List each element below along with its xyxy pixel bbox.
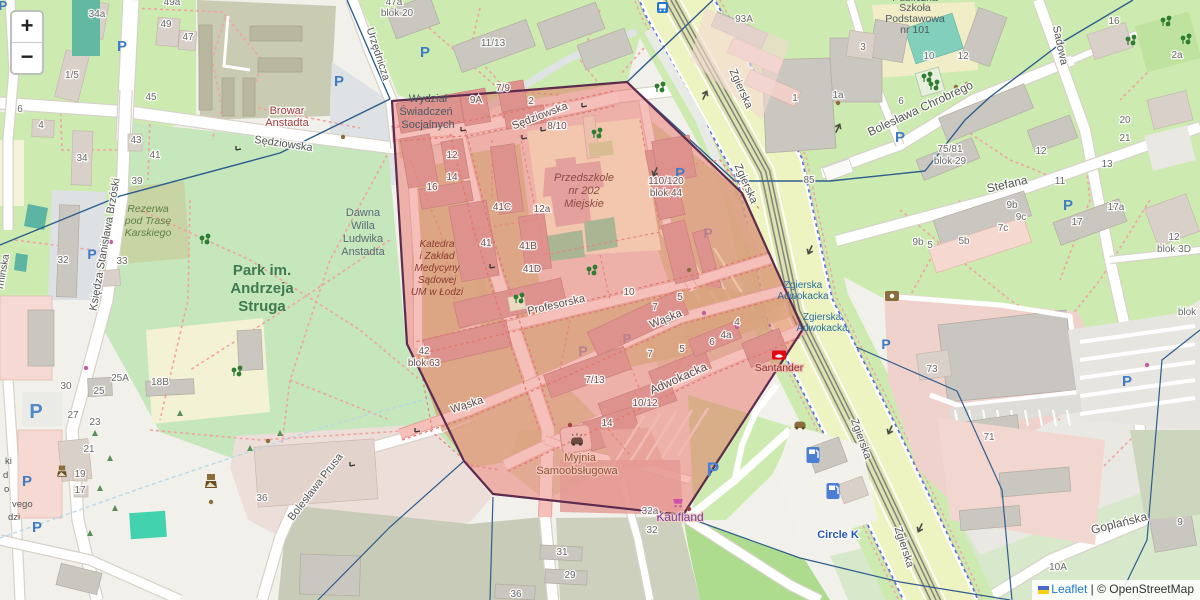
svg-text:9: 9: [1177, 517, 1183, 528]
svg-text:Medycyny: Medycyny: [414, 263, 460, 274]
svg-text:Struga: Struga: [238, 298, 286, 315]
svg-text:P: P: [22, 473, 32, 490]
svg-text:13: 13: [1101, 159, 1113, 170]
svg-text:47a: 47a: [386, 0, 403, 8]
svg-text:10/12: 10/12: [632, 398, 657, 409]
svg-text:23: 23: [89, 417, 101, 428]
svg-text:P: P: [32, 519, 42, 536]
svg-text:36: 36: [256, 493, 268, 504]
svg-text:85: 85: [803, 175, 815, 186]
svg-text:5: 5: [679, 344, 685, 355]
svg-text:20: 20: [1119, 115, 1131, 126]
svg-text:Ludwika: Ludwika: [343, 233, 384, 245]
svg-text:blok: blok: [1178, 307, 1197, 318]
svg-text:10: 10: [623, 287, 635, 298]
svg-text:7: 7: [652, 302, 658, 313]
svg-text:14: 14: [601, 418, 613, 429]
svg-text:3: 3: [860, 42, 866, 53]
svg-text:71: 71: [983, 432, 995, 443]
svg-text:Wydział: Wydział: [409, 93, 448, 105]
svg-text:36: 36: [510, 589, 522, 600]
svg-text:vego: vego: [12, 499, 33, 510]
svg-text:5: 5: [927, 240, 933, 251]
svg-text:7c: 7c: [998, 223, 1009, 234]
svg-text:32a: 32a: [642, 506, 659, 517]
svg-text:Myjnia: Myjnia: [564, 452, 597, 464]
svg-text:blok 44: blok 44: [650, 188, 683, 199]
svg-text:34a: 34a: [89, 9, 106, 20]
svg-text:Adwokacka: Adwokacka: [796, 323, 848, 334]
svg-text:Dawna: Dawna: [346, 207, 381, 219]
svg-text:21: 21: [1119, 133, 1131, 144]
svg-text:P: P: [420, 44, 430, 61]
svg-text:41C: 41C: [493, 202, 511, 213]
svg-text:10: 10: [923, 51, 935, 62]
svg-text:10A: 10A: [1049, 562, 1067, 573]
svg-text:5: 5: [677, 292, 683, 303]
svg-text:Socjalnych: Socjalnych: [401, 119, 454, 131]
svg-text:P: P: [623, 331, 632, 346]
svg-text:Samoobsługowa: Samoobsługowa: [536, 465, 618, 477]
svg-text:UM w Łodzi: UM w Łodzi: [411, 287, 464, 298]
svg-text:Anstadta: Anstadta: [341, 246, 385, 258]
svg-text:7: 7: [647, 349, 653, 360]
svg-text:Katedra: Katedra: [419, 239, 454, 250]
svg-text:25A: 25A: [111, 373, 129, 384]
svg-text:6: 6: [709, 337, 715, 348]
svg-text:nr 101: nr 101: [900, 24, 930, 36]
svg-text:1a: 1a: [832, 90, 844, 101]
svg-text:4: 4: [38, 120, 44, 131]
svg-text:d: d: [3, 470, 8, 481]
svg-text:Miejskie: Miejskie: [564, 198, 604, 210]
svg-text:P: P: [117, 38, 127, 55]
svg-text:P: P: [895, 129, 905, 146]
svg-text:i Zakład: i Zakład: [419, 251, 454, 262]
svg-text:dzi: dzi: [8, 512, 20, 523]
svg-text:Browar: Browar: [270, 105, 305, 117]
svg-text:41B: 41B: [519, 241, 537, 252]
svg-text:4a: 4a: [720, 330, 732, 341]
svg-text:P: P: [881, 336, 890, 352]
svg-text:9b: 9b: [1006, 200, 1018, 211]
svg-text:P: P: [703, 225, 712, 241]
svg-text:o: o: [4, 484, 9, 495]
svg-text:49: 49: [160, 19, 172, 30]
svg-text:21: 21: [83, 444, 95, 455]
svg-text:32: 32: [646, 525, 658, 536]
svg-text:Willa: Willa: [351, 220, 376, 232]
svg-text:9c: 9c: [1016, 212, 1027, 223]
svg-text:42: 42: [418, 346, 430, 357]
svg-text:blok 3D: blok 3D: [1157, 244, 1191, 255]
svg-text:45: 45: [145, 92, 157, 103]
svg-text:18B: 18B: [151, 377, 169, 388]
svg-text:17: 17: [1071, 217, 1083, 228]
svg-text:Zgierska: Zgierska: [784, 280, 823, 291]
svg-text:2a: 2a: [1171, 50, 1183, 61]
svg-text:P: P: [1063, 197, 1073, 214]
svg-text:6: 6: [898, 96, 904, 107]
svg-text:P: P: [1122, 373, 1132, 390]
svg-text:blok 63: blok 63: [408, 358, 441, 369]
svg-text:41: 41: [480, 238, 492, 249]
svg-text:31: 31: [556, 547, 568, 558]
svg-text:11/13: 11/13: [481, 38, 506, 49]
svg-text:39: 39: [131, 176, 143, 187]
svg-text:P: P: [29, 401, 42, 423]
svg-text:P: P: [87, 246, 96, 262]
svg-text:32: 32: [57, 255, 69, 266]
svg-text:Kaufland: Kaufland: [656, 510, 703, 524]
svg-text:Karskiego: Karskiego: [125, 227, 172, 239]
svg-text:Przedszkole: Przedszkole: [554, 172, 614, 184]
svg-text:73: 73: [926, 364, 938, 375]
svg-text:P: P: [0, 0, 8, 13]
svg-text:19: 19: [74, 469, 86, 480]
svg-text:1: 1: [792, 93, 798, 104]
svg-text:5b: 5b: [958, 236, 970, 247]
svg-text:47: 47: [182, 32, 194, 43]
svg-text:6: 6: [17, 104, 23, 115]
svg-text:blok 29: blok 29: [934, 156, 967, 167]
svg-text:Andrzeja: Andrzeja: [230, 280, 294, 297]
svg-text:blok 20: blok 20: [381, 8, 414, 19]
svg-text:25: 25: [93, 386, 105, 397]
svg-text:Circle K: Circle K: [817, 529, 859, 541]
svg-text:P: P: [578, 343, 587, 359]
svg-text:16: 16: [426, 182, 438, 193]
svg-text:Anstadta: Anstadta: [265, 117, 309, 129]
svg-text:41D: 41D: [523, 264, 541, 275]
svg-text:75/81: 75/81: [937, 144, 962, 155]
svg-text:Sądowej: Sądowej: [418, 275, 457, 286]
svg-text:4: 4: [734, 317, 740, 328]
svg-text:17a: 17a: [1108, 202, 1125, 213]
svg-text:16: 16: [1108, 16, 1120, 27]
svg-text:30: 30: [60, 381, 72, 392]
svg-text:7/13: 7/13: [585, 375, 605, 386]
svg-text:9A: 9A: [470, 95, 483, 106]
svg-text:29: 29: [564, 570, 576, 581]
svg-text:ki: ki: [5, 456, 12, 467]
svg-text:Rezerwa: Rezerwa: [127, 203, 169, 215]
svg-text:8/10: 8/10: [547, 121, 567, 132]
svg-text:9b: 9b: [912, 237, 924, 248]
svg-text:17: 17: [74, 485, 86, 496]
svg-text:12: 12: [1035, 146, 1047, 157]
svg-text:110/120: 110/120: [648, 176, 684, 187]
svg-text:P: P: [334, 73, 344, 90]
svg-text:49a: 49a: [164, 0, 181, 8]
svg-text:12: 12: [446, 150, 458, 161]
svg-text:43: 43: [130, 135, 142, 146]
svg-text:Park im.: Park im.: [233, 262, 291, 279]
svg-text:12a: 12a: [534, 204, 551, 215]
svg-text:93A: 93A: [735, 14, 753, 25]
svg-text:1/5: 1/5: [65, 70, 79, 81]
svg-text:Santander: Santander: [755, 362, 804, 374]
svg-text:Zgierska: Zgierska: [803, 312, 842, 323]
svg-text:14: 14: [446, 172, 458, 183]
svg-text:12: 12: [1168, 232, 1180, 243]
svg-text:7/9: 7/9: [496, 83, 510, 94]
svg-text:33: 33: [116, 256, 128, 267]
svg-text:11: 11: [1055, 176, 1066, 187]
svg-text:nr 202: nr 202: [568, 185, 599, 197]
svg-text:Adwokacka: Adwokacka: [777, 291, 829, 302]
svg-text:12: 12: [957, 51, 969, 62]
svg-text:Świadczeń: Świadczeń: [399, 105, 452, 118]
svg-text:34: 34: [76, 153, 88, 164]
svg-text:pod Trasę: pod Trasę: [124, 215, 172, 227]
svg-text:41: 41: [149, 150, 161, 161]
svg-text:2: 2: [528, 96, 534, 107]
svg-text:P: P: [707, 460, 720, 481]
svg-text:27: 27: [67, 410, 79, 421]
